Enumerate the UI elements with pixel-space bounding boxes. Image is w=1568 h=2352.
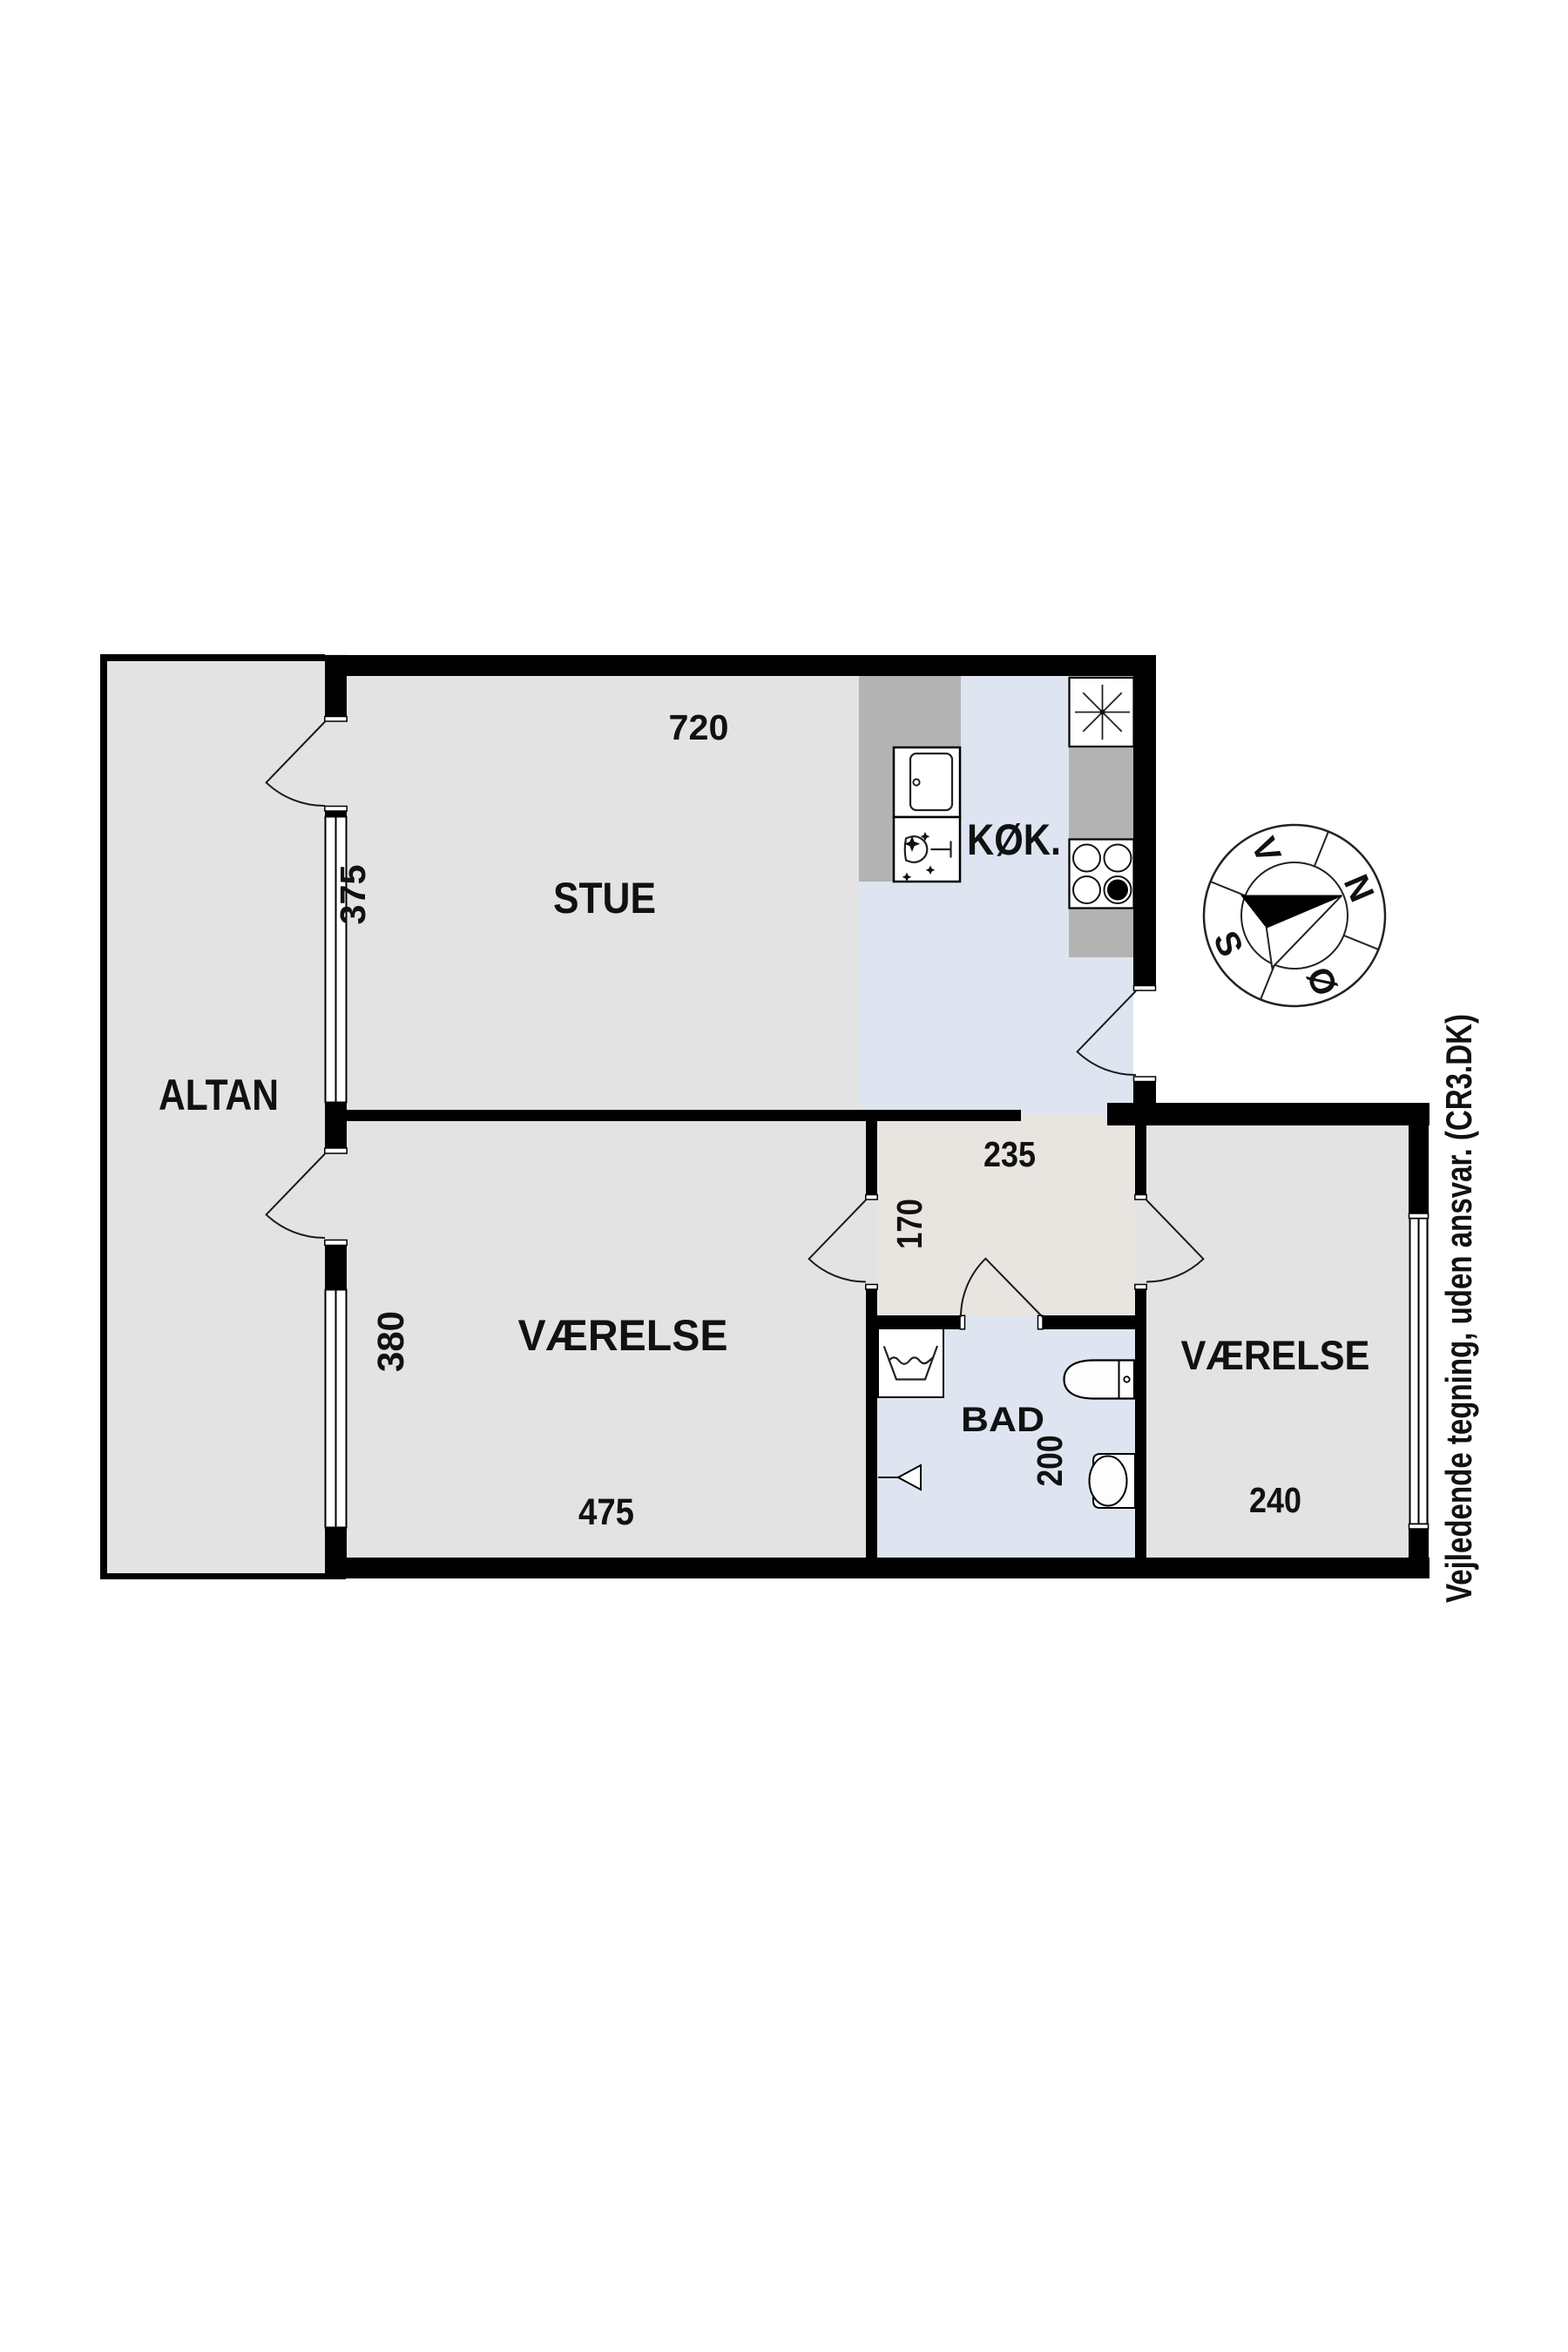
- svg-text:VÆRELSE: VÆRELSE: [518, 1311, 728, 1360]
- svg-text:380: 380: [370, 1311, 412, 1372]
- svg-text:VÆRELSE: VÆRELSE: [1181, 1332, 1370, 1378]
- svg-text:KØK.: KØK.: [967, 815, 1061, 864]
- svg-text:STUE: STUE: [553, 874, 656, 923]
- svg-text:235: 235: [983, 1134, 1036, 1174]
- svg-text:720: 720: [669, 707, 729, 747]
- svg-text:240: 240: [1249, 1480, 1301, 1520]
- svg-text:200: 200: [1030, 1436, 1070, 1487]
- svg-text:475: 475: [578, 1491, 634, 1533]
- svg-text:170: 170: [889, 1199, 929, 1249]
- svg-text:BAD: BAD: [961, 1401, 1044, 1439]
- svg-text:375: 375: [333, 865, 373, 925]
- svg-text:ALTAN: ALTAN: [159, 1071, 279, 1119]
- svg-text:Vejledende tegning, uden ansva: Vejledende tegning, uden ansvar. (CR3.DK…: [1438, 1014, 1479, 1603]
